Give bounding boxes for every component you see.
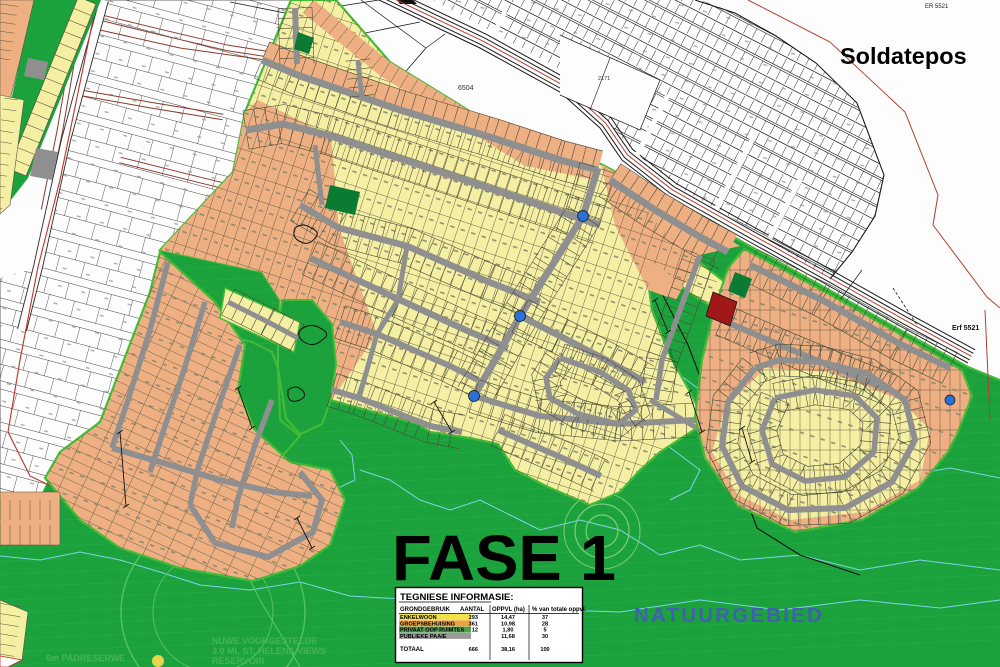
- svg-text:14,47: 14,47: [501, 615, 515, 621]
- svg-text:3.0 ML ST. HELENA VIEWS: 3.0 ML ST. HELENA VIEWS: [212, 646, 326, 656]
- svg-text:12: 12: [472, 628, 478, 634]
- svg-text:Soldatepos: Soldatepos: [840, 43, 967, 69]
- svg-text:% van totale oppvl.: % van totale oppvl.: [532, 607, 587, 613]
- svg-text:PRIVAAT OOP RUIMTES: PRIVAAT OOP RUIMTES: [400, 628, 465, 634]
- svg-text:TOTAAL: TOTAAL: [400, 647, 424, 653]
- svg-text:PUBLIEKE PAAIE: PUBLIEKE PAAIE: [400, 634, 447, 640]
- svg-text:AANTAL: AANTAL: [460, 607, 485, 613]
- svg-text:30: 30: [542, 634, 548, 640]
- svg-text:NUWE VOORGESTELDE: NUWE VOORGESTELDE: [212, 636, 317, 646]
- svg-text:361: 361: [469, 621, 478, 627]
- svg-text:NATUURGEBIED: NATUURGEBIED: [634, 604, 824, 627]
- svg-text:GRONDGEBRUIK: GRONDGEBRUIK: [400, 607, 451, 613]
- svg-text:293: 293: [469, 615, 478, 621]
- svg-text:OPPVL (ha): OPPVL (ha): [492, 607, 525, 613]
- svg-text:11,68: 11,68: [501, 634, 515, 640]
- svg-text:1,80: 1,80: [503, 628, 514, 634]
- svg-text:5: 5: [543, 628, 546, 634]
- svg-text:37: 37: [542, 615, 548, 621]
- svg-text:100: 100: [540, 647, 549, 653]
- svg-text:ER 5521: ER 5521: [925, 4, 949, 10]
- svg-text:Erf 5521: Erf 5521: [952, 325, 979, 332]
- svg-text:10,98: 10,98: [501, 621, 515, 627]
- svg-text:ENKELWOON: ENKELWOON: [400, 615, 437, 621]
- svg-text:666: 666: [469, 647, 478, 653]
- svg-text:6m PADRESERWE: 6m PADRESERWE: [46, 653, 125, 663]
- svg-text:FASE 1: FASE 1: [392, 522, 616, 594]
- svg-text:RESERVOIR: RESERVOIR: [212, 656, 265, 666]
- svg-text:GROEPSBEHUISING: GROEPSBEHUISING: [400, 621, 455, 627]
- svg-text:28: 28: [542, 621, 548, 627]
- svg-text:TEGNIESE INFORMASIE:: TEGNIESE INFORMASIE:: [400, 592, 513, 603]
- svg-text:6504: 6504: [458, 85, 474, 92]
- svg-text:38,16: 38,16: [501, 647, 515, 653]
- svg-text:2171: 2171: [598, 76, 610, 82]
